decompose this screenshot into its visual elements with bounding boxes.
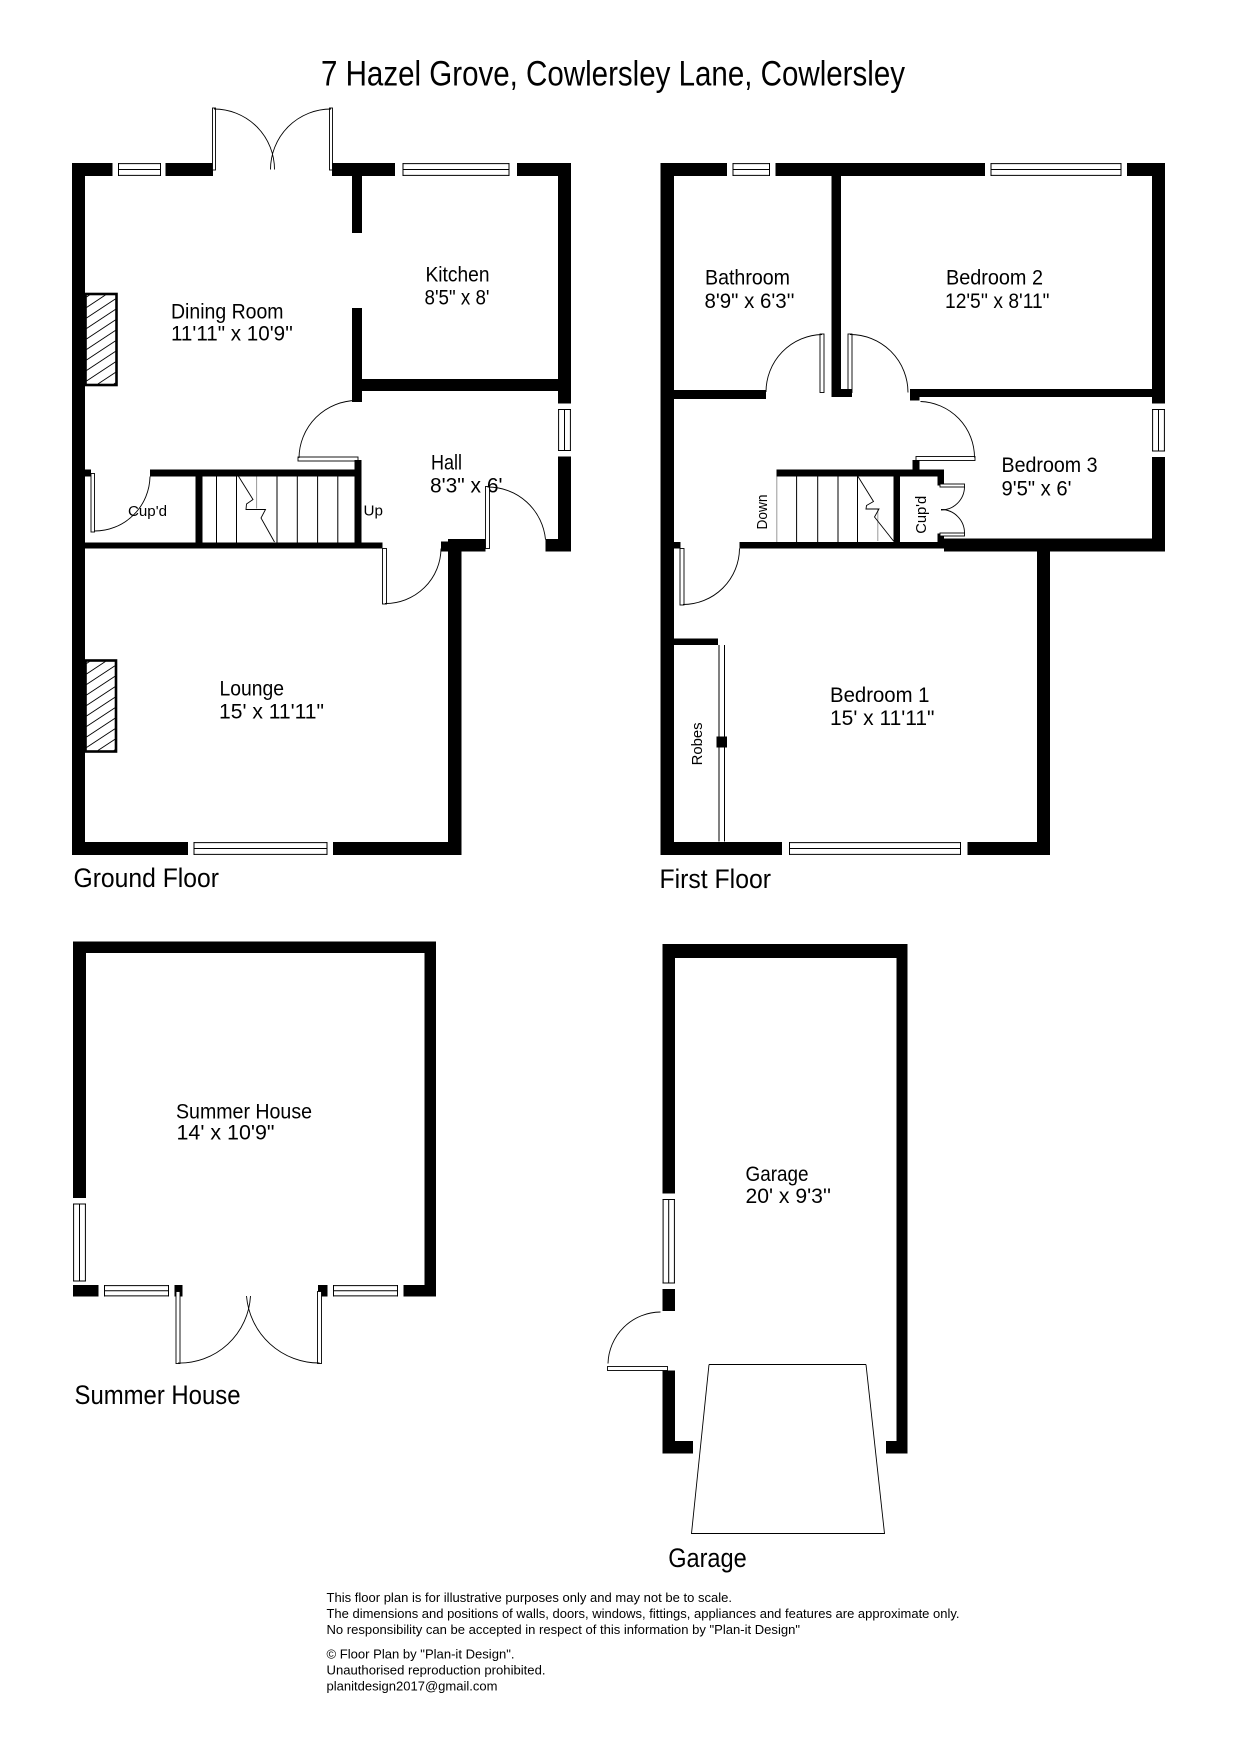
svg-text:Down: Down — [754, 495, 771, 530]
svg-text:The dimensions and positions o: The dimensions and positions of walls, d… — [327, 1606, 960, 1621]
svg-text:7 Hazel Grove, Cowlersley Lane: 7 Hazel Grove, Cowlersley Lane, Cowlersl… — [321, 55, 905, 94]
svg-text:Garage: Garage — [746, 1163, 809, 1186]
svg-text:Up: Up — [364, 503, 384, 520]
svg-text:20' x 9'3'': 20' x 9'3'' — [746, 1185, 832, 1208]
svg-text:11'11" x 10'9'': 11'11" x 10'9'' — [171, 323, 293, 346]
svg-text:Bedroom 3: Bedroom 3 — [1002, 454, 1098, 477]
svg-text:Bedroom 2: Bedroom 2 — [946, 267, 1043, 290]
svg-text:Kitchen: Kitchen — [426, 264, 490, 287]
svg-text:8'3" x 6': 8'3" x 6' — [430, 475, 503, 498]
svg-text:9'5" x 6': 9'5" x 6' — [1002, 478, 1072, 501]
svg-text:Cup'd: Cup'd — [913, 496, 930, 534]
svg-text:14' x 10'9": 14' x 10'9" — [177, 1122, 275, 1145]
svg-text:15' x 11'11": 15' x 11'11" — [830, 707, 935, 730]
svg-text:15' x 11'11": 15' x 11'11" — [219, 701, 324, 724]
svg-text:Robes: Robes — [689, 722, 706, 765]
svg-text:8'5" x 8': 8'5" x 8' — [425, 287, 490, 310]
svg-text:First Floor: First Floor — [660, 864, 772, 894]
svg-text:Garage: Garage — [668, 1543, 747, 1573]
svg-text:Summer House: Summer House — [176, 1101, 312, 1124]
svg-text:Unauthorised reproduction proh: Unauthorised reproduction prohibited. — [327, 1663, 546, 1678]
svg-text:Ground Floor: Ground Floor — [74, 863, 220, 893]
svg-text:Dining Room: Dining Room — [171, 301, 284, 324]
svg-text:Bedroom 1: Bedroom 1 — [830, 684, 930, 707]
svg-text:12'5'' x 8'11": 12'5'' x 8'11" — [945, 290, 1050, 313]
svg-text:Cup'd: Cup'd — [128, 503, 167, 520]
svg-text:© Floor Plan by "Plan-it Desig: © Floor Plan by "Plan-it Design". — [327, 1647, 515, 1662]
svg-text:Bathroom: Bathroom — [705, 267, 790, 290]
svg-text:8'9" x 6'3'': 8'9" x 6'3'' — [705, 290, 795, 313]
svg-text:This floor plan is for illustr: This floor plan is for illustrative purp… — [327, 1590, 733, 1605]
svg-text:Lounge: Lounge — [220, 678, 285, 701]
svg-text:Hall: Hall — [431, 452, 462, 475]
svg-text:Summer House: Summer House — [75, 1380, 241, 1410]
svg-text:planitdesign2017@gmail.com: planitdesign2017@gmail.com — [327, 1679, 498, 1694]
svg-text:No responsibility can be accep: No responsibility can be accepted in res… — [327, 1622, 801, 1637]
